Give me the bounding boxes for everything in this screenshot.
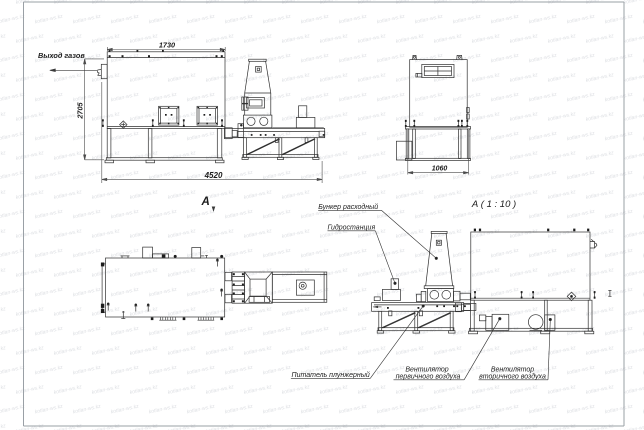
svg-text:вторичного воздуха: вторичного воздуха xyxy=(479,373,546,381)
svg-text:Вентилятор: Вентилятор xyxy=(491,366,534,373)
svg-text:первичного воздуха: первичного воздуха xyxy=(396,373,461,381)
svg-text:1730: 1730 xyxy=(159,41,175,50)
svg-text:Бункер расходный: Бункер расходный xyxy=(318,203,378,211)
svg-text:Питатель плунжерный: Питатель плунжерный xyxy=(292,371,370,379)
svg-text:Выход газов: Выход газов xyxy=(38,51,85,60)
svg-text:Вентилятор: Вентилятор xyxy=(405,366,448,373)
svg-text:А: А xyxy=(201,196,210,208)
svg-text:4520: 4520 xyxy=(204,171,223,180)
svg-text:2705: 2705 xyxy=(76,101,85,119)
svg-text:А ( 1 : 10 ): А ( 1 : 10 ) xyxy=(471,199,516,210)
svg-text:1060: 1060 xyxy=(432,166,448,173)
svg-text:Гидростанция: Гидростанция xyxy=(328,223,376,231)
